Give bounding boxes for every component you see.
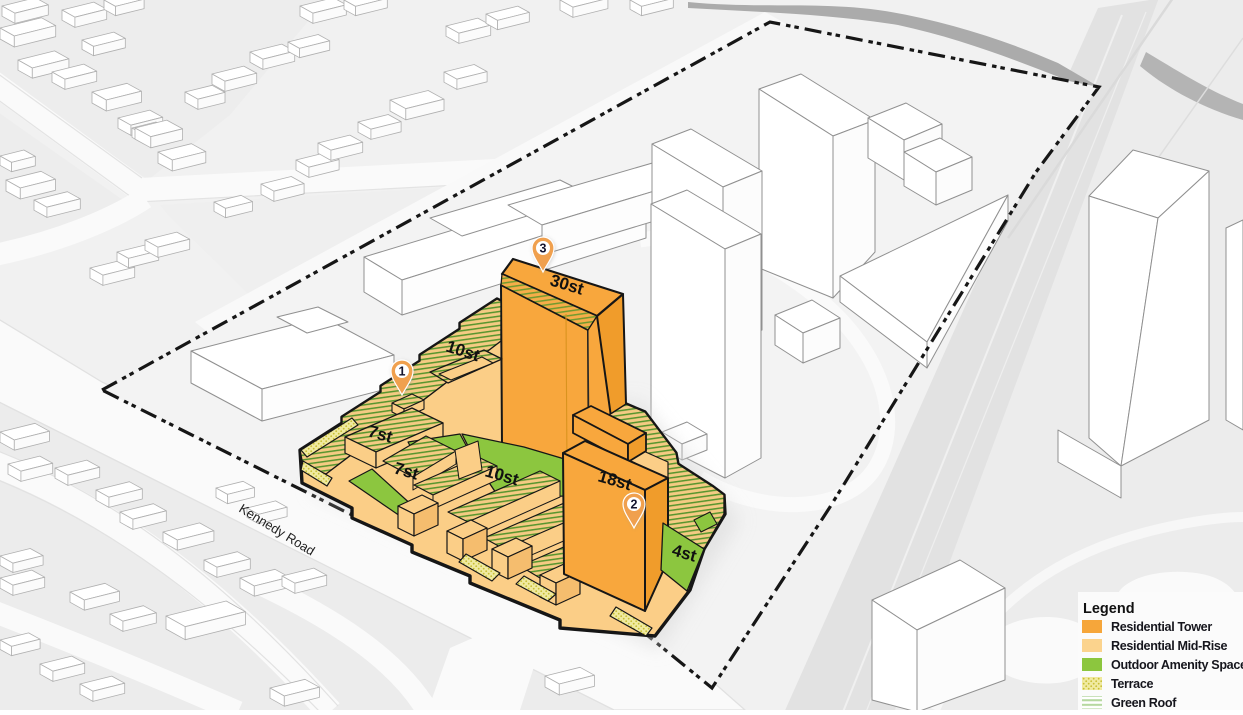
svg-text:3: 3 [540, 241, 547, 255]
svg-text:Residential Mid-Rise: Residential Mid-Rise [1111, 639, 1228, 653]
svg-text:Terrace: Terrace [1111, 677, 1153, 691]
svg-text:Residential Tower: Residential Tower [1111, 620, 1212, 634]
svg-text:Green Roof: Green Roof [1111, 696, 1177, 710]
svg-text:2: 2 [631, 497, 638, 511]
svg-text:1: 1 [399, 364, 406, 378]
svg-text:Outdoor Amenity Space: Outdoor Amenity Space [1111, 658, 1243, 672]
svg-text:Legend: Legend [1083, 601, 1135, 617]
